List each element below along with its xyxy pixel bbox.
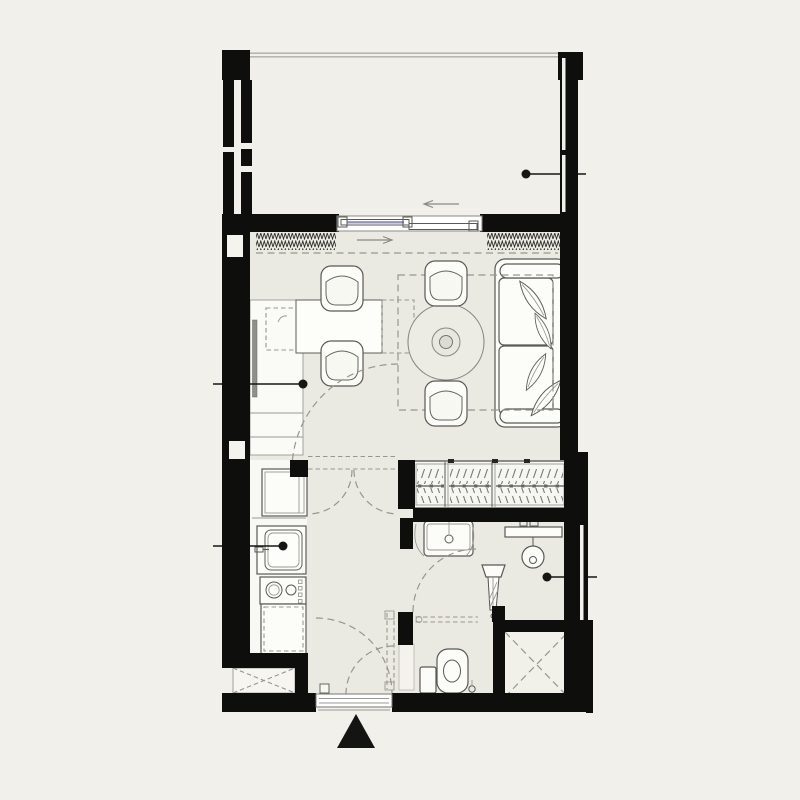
- living-room-marker: [299, 380, 308, 389]
- wall-niche: [229, 441, 245, 459]
- hangers-lower: [417, 488, 443, 503]
- shaft-bottom-left: [233, 668, 295, 693]
- washbasin: [415, 521, 474, 556]
- cistern: [420, 667, 436, 693]
- base-cabinet: [261, 604, 306, 654]
- balcony-floor: [251, 57, 560, 215]
- shower-mixer-bar: [505, 527, 562, 537]
- dining-chair: [321, 266, 363, 311]
- entry-arrow-triangle: [337, 714, 375, 748]
- hangers-lower: [450, 488, 490, 503]
- balcony-railing: [222, 53, 583, 57]
- wall-niche: [227, 235, 243, 257]
- dining-chair: [425, 261, 467, 306]
- sofa: [495, 259, 567, 427]
- toilet-bowl: [437, 649, 468, 693]
- floor-plan-drawing: [0, 0, 800, 800]
- sliding-glass-door: [337, 216, 482, 231]
- shaft-bottom-right: [505, 632, 568, 697]
- door-pocket-niche: [399, 644, 414, 690]
- tv-panel: [253, 320, 258, 397]
- door-hinge-block: [320, 684, 329, 693]
- floor-plan-canvas: [0, 0, 800, 800]
- curtain-hatch-right: [487, 233, 560, 250]
- kitchen-sink-marker: [279, 542, 288, 551]
- cooktop-2-burner: [260, 577, 306, 604]
- hangers-upper: [417, 469, 443, 484]
- shower-marker: [543, 573, 552, 582]
- dining-chair: [425, 381, 467, 426]
- hangers-upper: [497, 469, 563, 484]
- balcony-marker: [522, 170, 531, 179]
- hangers-lower: [497, 488, 563, 503]
- counter-desk: [250, 300, 303, 455]
- wardrobe: [413, 459, 567, 508]
- round-table: [408, 304, 484, 380]
- kitchen-sink: [255, 526, 306, 574]
- hangers-upper: [450, 469, 490, 484]
- dining-chair: [321, 341, 363, 386]
- curtain-hatch-left: [256, 233, 336, 250]
